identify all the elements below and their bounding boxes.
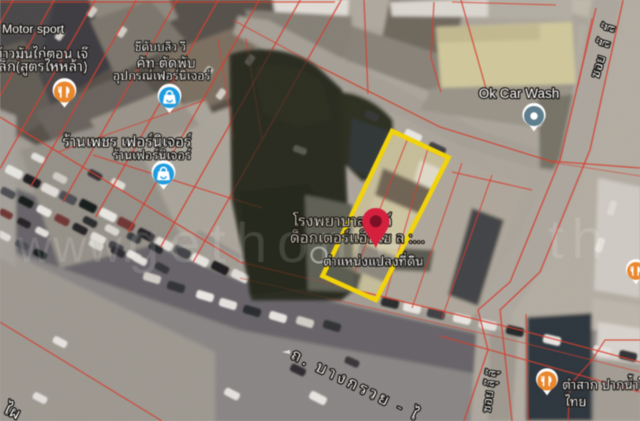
svg-text:Ok Car Wash: Ok Car Wash xyxy=(479,86,560,101)
svg-text:Motor sport: Motor sport xyxy=(2,22,65,36)
svg-text:www.: www. xyxy=(17,220,136,272)
svg-text:th: th xyxy=(548,207,611,270)
